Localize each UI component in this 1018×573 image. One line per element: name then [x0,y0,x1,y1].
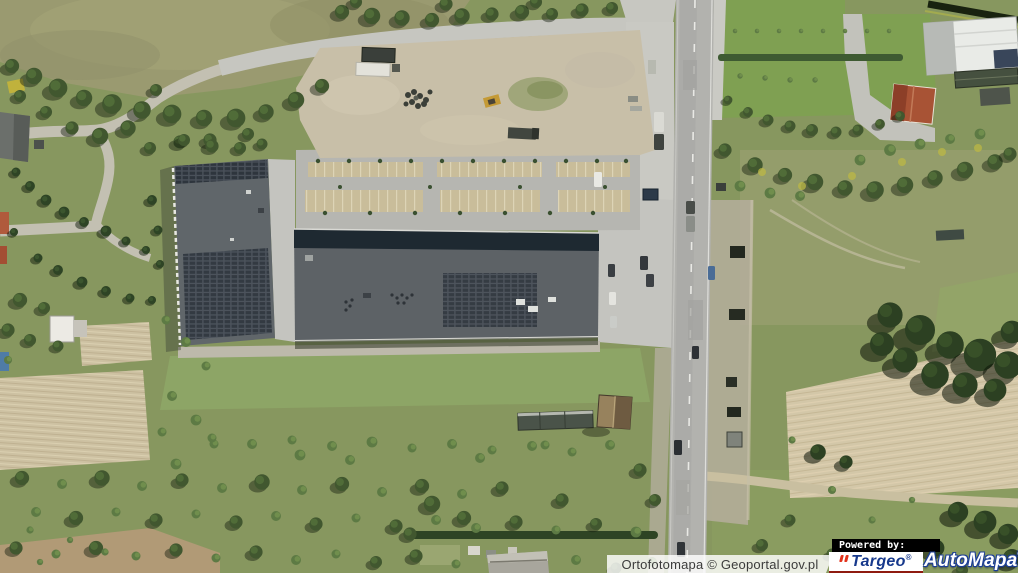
targeo-logo[interactable]: Targeo ® [829,552,923,573]
attribution-text: Ortofotomapa © Geoportal.gov.pl [622,557,819,572]
main-road [668,0,714,573]
targeo-quote-icon [840,555,849,562]
map-attribution: Ortofotomapa © Geoportal.gov.pl [607,555,833,573]
targeo-registered-mark: ® [906,553,912,562]
white-industrial-building [923,17,1018,75]
map-viewport[interactable]: Ortofotomapa © Geoportal.gov.pl Powered … [0,0,1018,573]
targeo-wordmark: Targeo [851,553,906,571]
automapa-wordmark: AutoMapa [924,550,1017,572]
construction-site [296,30,656,158]
aerial-imagery [0,0,1018,573]
automapa-logo[interactable]: AutoMapa ® [924,549,1018,573]
powered-by-text: Powered by: [839,540,905,551]
